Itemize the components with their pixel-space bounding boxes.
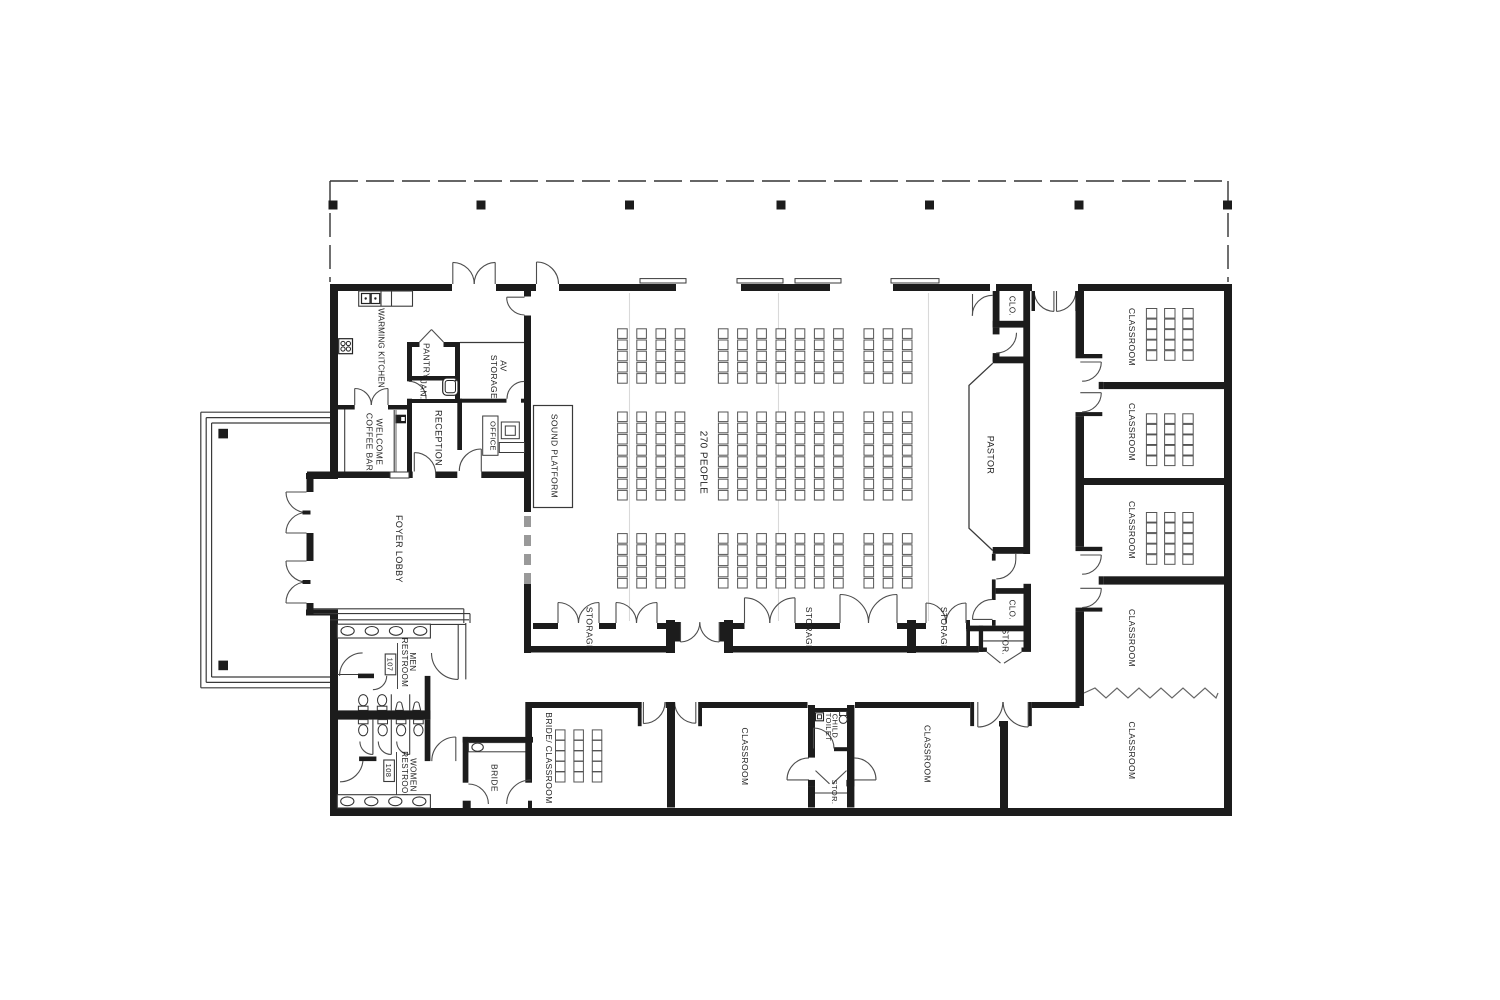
svg-text:BRIDE: BRIDE: [490, 764, 500, 792]
svg-text:RESTROOM: RESTROOM: [400, 751, 409, 800]
svg-text:SOUND PLATFORM: SOUND PLATFORM: [550, 414, 560, 498]
svg-text:FOYER LOBBY: FOYER LOBBY: [394, 515, 404, 583]
svg-text:JAN.: JAN.: [419, 379, 429, 399]
svg-text:CLO.: CLO.: [1008, 296, 1017, 316]
svg-text:WOMEN: WOMEN: [409, 758, 418, 792]
svg-text:CLASSROOM: CLASSROOM: [1127, 403, 1137, 461]
svg-text:BRIDE/ CLASSROOM: BRIDE/ CLASSROOM: [544, 712, 554, 803]
svg-text:CLASSROOM: CLASSROOM: [1127, 501, 1137, 559]
svg-text:COFFEE BAR: COFFEE BAR: [365, 413, 375, 471]
svg-text:WELCOME: WELCOME: [375, 419, 385, 466]
svg-text:CLASSROOM: CLASSROOM: [1127, 722, 1137, 780]
svg-text:AV: AV: [499, 360, 509, 372]
svg-text:STORAGE: STORAGE: [585, 607, 595, 651]
svg-text:WARMING KITCHEN: WARMING KITCHEN: [377, 308, 386, 388]
svg-text:OFFICE: OFFICE: [489, 421, 498, 451]
svg-text:STOR.: STOR.: [830, 780, 839, 805]
svg-text:RECEPTION: RECEPTION: [434, 410, 444, 466]
svg-text:PASTOR: PASTOR: [986, 436, 996, 475]
svg-text:STORAGE: STORAGE: [939, 607, 949, 651]
svg-text:CLASSROOM: CLASSROOM: [1127, 609, 1137, 667]
svg-text:107: 107: [385, 658, 394, 672]
svg-text:270 PEOPLE: 270 PEOPLE: [698, 431, 709, 494]
svg-text:CLASSROOM: CLASSROOM: [740, 728, 750, 786]
svg-text:PANTRY: PANTRY: [422, 343, 432, 379]
svg-text:RESTROOM: RESTROOM: [400, 638, 409, 687]
svg-text:108: 108: [384, 764, 393, 778]
svg-text:STORAGE: STORAGE: [489, 355, 499, 399]
svg-text:CLASSROOM: CLASSROOM: [1127, 308, 1137, 366]
svg-text:TOILET: TOILET: [824, 713, 833, 742]
svg-text:STORAGE: STORAGE: [804, 607, 814, 651]
svg-text:STOR.: STOR.: [1001, 629, 1010, 655]
svg-text:CLO.: CLO.: [1008, 600, 1017, 620]
svg-text:CLASSROOM: CLASSROOM: [923, 725, 933, 783]
